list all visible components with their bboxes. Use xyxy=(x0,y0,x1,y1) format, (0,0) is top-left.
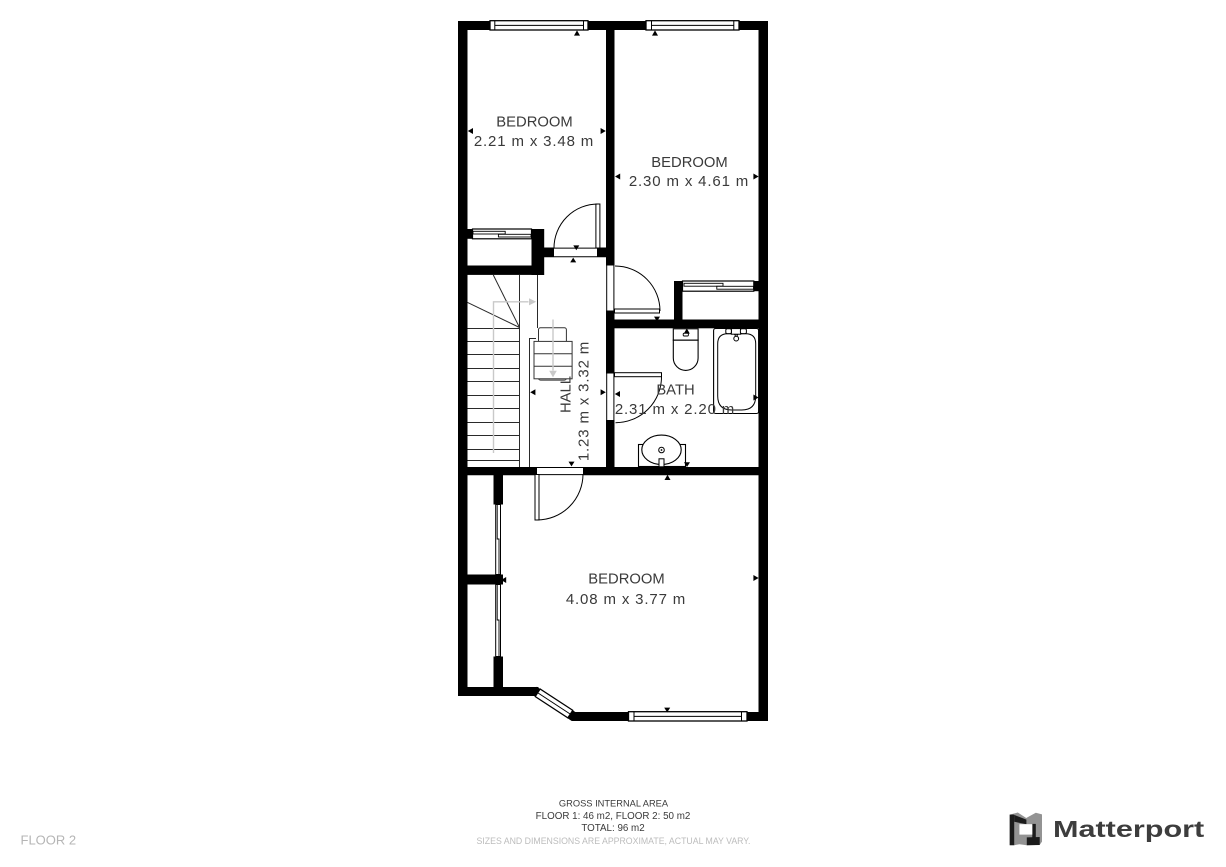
svg-text:GROSS INTERNAL AREA: GROSS INTERNAL AREA xyxy=(559,798,669,808)
svg-text:4.08 m x 3.77 m: 4.08 m x 3.77 m xyxy=(566,591,686,608)
svg-text:2.31 m x 2.20 m: 2.31 m x 2.20 m xyxy=(615,401,735,418)
svg-text:Matterport: Matterport xyxy=(1053,816,1204,842)
svg-text:FLOOR 1: 46 m2, FLOOR 2: 50 m2: FLOOR 1: 46 m2, FLOOR 2: 50 m2 xyxy=(536,811,691,822)
svg-text:BEDROOM: BEDROOM xyxy=(496,115,572,131)
svg-text:TOTAL: 96 m2: TOTAL: 96 m2 xyxy=(581,823,644,834)
svg-text:1.23 m x 3.32 m: 1.23 m x 3.32 m xyxy=(576,341,593,461)
svg-text:2.30 m x 4.61 m: 2.30 m x 4.61 m xyxy=(629,173,749,190)
svg-text:BEDROOM: BEDROOM xyxy=(651,155,727,171)
svg-text:SIZES AND DIMENSIONS ARE APPRO: SIZES AND DIMENSIONS ARE APPROXIMATE, AC… xyxy=(477,836,751,846)
svg-text:HALL: HALL xyxy=(559,376,575,413)
svg-text:BEDROOM: BEDROOM xyxy=(588,572,664,588)
svg-text:BATH: BATH xyxy=(656,382,694,398)
svg-text:FLOOR 2: FLOOR 2 xyxy=(21,833,77,848)
svg-text:2.21 m x 3.48 m: 2.21 m x 3.48 m xyxy=(474,133,594,150)
